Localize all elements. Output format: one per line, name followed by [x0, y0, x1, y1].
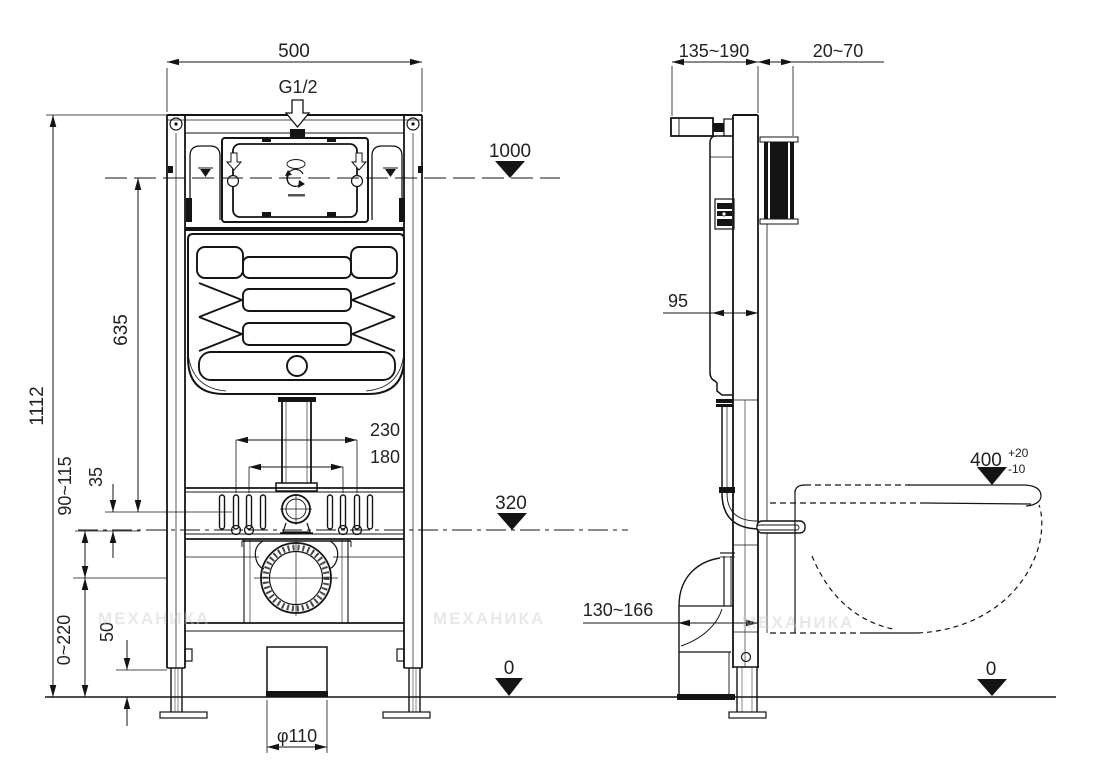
dim-bolt-span-inner: 180: [370, 447, 400, 467]
dimension-labels: 500 G1/2 1000 1112 635 90~115 35 0~220 5…: [27, 41, 1029, 746]
level-label-0-front: 0: [504, 658, 515, 679]
side-view: [671, 115, 1042, 718]
dim-overall-height: 1112: [27, 386, 48, 425]
watermark-text: МЕХАНИКА: [98, 609, 210, 628]
dim-frame-width: 500: [278, 41, 310, 62]
flush-plate-wall-box: [760, 137, 798, 224]
dim-stud-height-range: 90~115: [55, 456, 75, 515]
adjustable-foot: [383, 668, 430, 718]
level-label-1000: 1000: [489, 141, 531, 162]
wc-frame-installation-drawing: 500 G1/2 1000 1112 635 90~115 35 0~220 5…: [0, 0, 1100, 771]
mounting-rail: [185, 488, 404, 539]
watermark-text: МЕХАНИКА: [433, 609, 545, 628]
outlet-sleeve: [266, 647, 328, 697]
dim-bowl-height: 400: [970, 450, 1002, 471]
dim-tank-height: 635: [111, 314, 132, 346]
drain-elbow-side: [677, 553, 735, 700]
level-marker-icon: [495, 161, 525, 178]
dim-bowl-tol-plus: +20: [1008, 446, 1029, 460]
cistern-front: [188, 234, 404, 394]
dim-bolt-span-outer: 230: [370, 420, 400, 440]
level-label-0-side: 0: [986, 659, 997, 680]
dim-stud-offset: 35: [86, 467, 106, 487]
inlet-arrow-icon: [286, 100, 309, 127]
dim-leg-adjust-range: 0~220: [54, 615, 74, 666]
technical-drawing-page: 500 G1/2 1000 1112 635 90~115 35 0~220 5…: [0, 0, 1100, 771]
watermarks: МЕХАНИКА МЕХАНИКА МЕХАНИКА: [98, 609, 854, 632]
dim-bowl-tol-minus: -10: [1008, 462, 1026, 476]
watermark-text: МЕХАНИКА: [742, 613, 854, 632]
flow-arrow-icon: [352, 153, 366, 170]
flush-pipe-front: [276, 397, 317, 491]
fill-valve-assembly: [671, 118, 734, 229]
drain-pipe-front: [185, 539, 404, 623]
valve-handle: [671, 118, 713, 136]
dim-drain-offset-range: 130~166: [583, 600, 654, 620]
toilet-bowl-outline: [770, 485, 1042, 633]
access-panel: [185, 137, 405, 229]
level-label-320: 320: [495, 493, 527, 514]
dim-outlet-diameter: φ110: [277, 726, 317, 746]
dim-wall-finish-range: 20~70: [813, 41, 864, 61]
adjustable-foot: [160, 668, 207, 718]
supply-flange: [280, 494, 313, 533]
level-marker-icon: [495, 678, 523, 696]
cistern-emboss-pattern: [197, 247, 397, 380]
left-compartment: [190, 146, 220, 220]
dim-frame-depth-range: 135~190: [679, 41, 750, 61]
water-inlet: [286, 100, 309, 137]
frame-base: [160, 623, 430, 718]
level-marker-icon: [497, 513, 527, 530]
cistern-side: [710, 136, 733, 407]
dim-tank-depth: 95: [668, 291, 688, 311]
adjustable-foot-side: [729, 667, 766, 718]
inlet-thread-label: G1/2: [278, 77, 317, 97]
right-compartment: [372, 146, 402, 220]
level-marker-icon: [977, 679, 1007, 696]
flow-arrow-icon: [227, 153, 241, 170]
flush-bend-side: [719, 407, 805, 533]
